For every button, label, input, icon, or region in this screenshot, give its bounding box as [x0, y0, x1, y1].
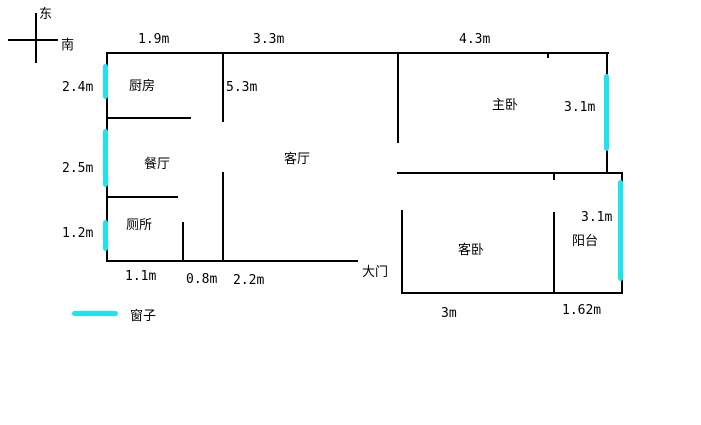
- room-label-dining: 餐厅: [144, 158, 170, 172]
- wall-living-master-divider: [397, 52, 399, 143]
- floor-plan-canvas: 东 南 厨房 餐厅 客厅 厕所 主卧 客卧 阳台 大门 1.9m 3.3m 4.…: [0, 0, 701, 425]
- wall-north: [106, 52, 609, 54]
- legend-window-label: 窗子: [130, 310, 156, 324]
- dim-master-width: 4.3m: [459, 33, 490, 47]
- room-label-master-bedroom: 主卧: [492, 99, 518, 113]
- dim-toilet-width: 1.1m: [125, 270, 156, 284]
- wall-kitchen-living-divider: [222, 52, 224, 122]
- dim-balcony-height: 3.1m: [581, 211, 612, 225]
- wall-master-east-lower: [606, 149, 608, 174]
- compass-south-label: 南: [61, 39, 74, 53]
- room-label-guest-bedroom: 客卧: [458, 244, 484, 258]
- wall-master-south: [397, 172, 623, 174]
- wall-guest-balcony-divider: [553, 212, 555, 293]
- window-kitchen: [103, 64, 108, 99]
- wall-north-tick: [547, 52, 549, 58]
- wall-kitchen-south: [106, 117, 191, 119]
- compass-vertical-line: [35, 13, 37, 63]
- dim-toilet-door-width: 0.8m: [186, 273, 217, 287]
- door-label: 大门: [362, 266, 388, 280]
- compass-east-label: 东: [39, 8, 52, 22]
- dim-living-width: 3.3m: [253, 33, 284, 47]
- wall-toilet-north: [106, 196, 178, 198]
- room-label-toilet: 厕所: [126, 219, 152, 233]
- wall-guest-west: [401, 210, 403, 294]
- room-label-kitchen: 厨房: [129, 80, 155, 94]
- room-label-balcony: 阳台: [572, 235, 598, 249]
- dim-master-height: 3.1m: [564, 101, 595, 115]
- window-toilet: [103, 220, 108, 251]
- dim-dining-height: 2.5m: [62, 162, 93, 176]
- room-label-living: 客厅: [284, 153, 310, 167]
- dim-balcony-width: 1.62m: [562, 304, 601, 318]
- wall-south-living: [106, 260, 358, 262]
- wall-balcony-east-lower: [621, 279, 623, 294]
- wall-toilet-east: [182, 222, 184, 262]
- window-dining: [103, 129, 108, 187]
- dim-guest-width: 3m: [441, 307, 457, 321]
- legend-window-swatch: [72, 311, 118, 316]
- wall-master-east-upper: [606, 52, 608, 76]
- wall-dining-living-divider: [222, 172, 224, 262]
- dim-kitchen-width: 1.9m: [138, 33, 169, 47]
- window-balcony: [618, 180, 623, 281]
- dim-living-height: 5.3m: [226, 81, 257, 95]
- window-master-bedroom: [604, 74, 609, 151]
- compass-horizontal-line: [8, 39, 58, 41]
- dim-kitchen-height: 2.4m: [62, 81, 93, 95]
- wall-guest-south: [401, 292, 623, 294]
- wall-guest-balcony-tick: [553, 172, 555, 180]
- dim-living-bottom-width: 2.2m: [233, 274, 264, 288]
- dim-toilet-height: 1.2m: [62, 227, 93, 241]
